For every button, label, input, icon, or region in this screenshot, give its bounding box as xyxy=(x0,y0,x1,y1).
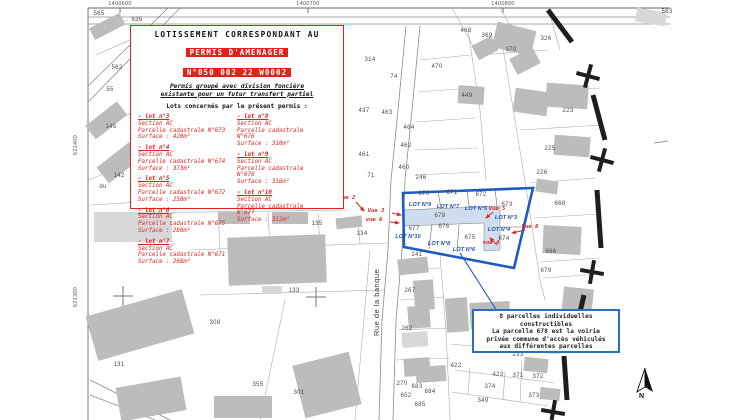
parcel-number-label: 349 xyxy=(478,398,489,404)
vue-reference-label: vue 6 xyxy=(366,217,383,223)
vue-reference-label: Vue 5 xyxy=(489,206,506,212)
permit-lot-entry: - lot n°8Section ACParcelle cadastraleN°… xyxy=(237,114,336,148)
parcel-number-label: 134 xyxy=(357,231,368,237)
grid-coordinate-top: 1400700 xyxy=(296,1,320,7)
parcel-number-label: 71 xyxy=(367,173,374,179)
grid-coordinate-left: 621300 xyxy=(73,287,79,307)
parcel-number-label: 449 xyxy=(462,93,473,99)
parcel-number-label: 314 xyxy=(365,57,376,63)
parcel-number-label: 226 xyxy=(537,170,548,176)
lot-name-label: LOT N°5 xyxy=(465,206,487,212)
grid-coordinate-top: 1400600 xyxy=(108,1,132,7)
parcel-number-label: 74 xyxy=(390,74,397,80)
lot-name-label: LOT N°9 xyxy=(409,202,431,208)
parcel-number-label: 374 xyxy=(485,384,496,390)
permit-lot-line: Parcelle cadastrale xyxy=(237,128,336,135)
permit-lot-line: Parcelle cadastrale xyxy=(237,204,336,211)
parcel-number-label: 565 xyxy=(94,11,105,17)
permit-lot-header: - lot n°7 xyxy=(138,239,237,246)
parcel-number-label: 369 xyxy=(482,33,493,39)
parcel-number-label: 668 xyxy=(555,201,566,207)
parcel-number-label: 685 xyxy=(415,402,426,408)
parcel-number-label: du xyxy=(99,184,106,190)
permit-lot-line: Surface : 268m² xyxy=(138,259,237,266)
parcel-number-label: 246 xyxy=(416,175,427,181)
parcels-info-box: 8 parcelles individuelles constructibles… xyxy=(472,309,620,353)
permit-lot-header: - lot n°3 xyxy=(138,114,237,121)
permit-lot-header: - lot n°8 xyxy=(237,114,336,121)
parcel-number-label: 225 xyxy=(545,146,556,152)
permit-number-banner: N°050 002 22 W0002 xyxy=(183,68,291,77)
parcel-number-label: 679 xyxy=(541,268,552,274)
lot-parcel-number-label: 670 xyxy=(419,191,430,197)
permit-lot-line: Section AC xyxy=(237,121,336,128)
lot-parcel-number-label: 677 xyxy=(409,226,420,232)
parcel-number-label: 460 xyxy=(399,165,410,171)
lot-name-label: LOT N°6 xyxy=(453,247,475,253)
parcel-number-label: 666 xyxy=(546,249,557,255)
vue-reference-label: Vue 8 xyxy=(522,224,539,230)
parcel-number-label: 463 xyxy=(382,110,393,116)
permit-lots-column: - lot n°3Section ACParcelle cadastrale N… xyxy=(138,114,237,270)
parcel-number-label: 468 xyxy=(461,28,472,34)
parcel-number-label: 372 xyxy=(533,374,544,380)
permit-lot-line: Section AC xyxy=(138,214,237,221)
permit-lot-header: - lot n°5 xyxy=(138,176,237,183)
parcel-number-label: 262 xyxy=(402,326,413,332)
parcel-number-label: 142 xyxy=(114,173,125,179)
permit-lot-line: Parcelle cadastrale N°672 xyxy=(138,190,237,197)
parcel-number-label: 462 xyxy=(401,143,412,149)
permit-lot-line: Section AC xyxy=(138,246,237,253)
lot-name-label: LOT N°7 xyxy=(437,204,459,210)
lot-name-label: LOT N°3 xyxy=(495,215,517,221)
permit-lot-line: Section AC xyxy=(237,159,336,166)
permit-lot-line: Surface : 316m² xyxy=(237,179,336,186)
parcel-number-label: 241 xyxy=(412,252,423,258)
street-name-label: Rue de la banque xyxy=(372,255,386,350)
permit-lot-line: Surface : 420m² xyxy=(138,134,237,141)
lot-parcel-number-label: 671 xyxy=(447,190,458,196)
permit-lot-header: - lot n°4 xyxy=(138,145,237,152)
permit-type-banner: PERMIS D'AMENAGER xyxy=(186,48,289,57)
parcel-number-label: 464 xyxy=(404,125,415,131)
parcel-number-label: 371 xyxy=(513,373,524,379)
permit-lot-entry: - lot n°9Section ACParcelle cadastraleN°… xyxy=(237,152,336,186)
parcel-number-label: 131 xyxy=(114,362,125,368)
permit-lot-entry: - lot n°7Section ACParcelle cadastrale N… xyxy=(138,239,237,266)
parcel-number-label: 223 xyxy=(563,108,574,114)
parcel-number-label: 145 xyxy=(106,124,117,130)
parcel-number-label: 635 xyxy=(132,17,143,23)
parcel-number-label: 55 xyxy=(106,87,113,93)
parcel-number-label: 562 xyxy=(112,65,123,71)
permit-lot-header: - lot n°10 xyxy=(237,190,336,197)
cadastral-map-sheet: 56563556255145142du131308133355301135134… xyxy=(0,0,750,420)
parcel-number-label: 683 xyxy=(412,384,423,390)
permit-lot-line: Surface : 373m² xyxy=(138,166,237,173)
north-arrow-icon xyxy=(637,368,653,392)
parcel-number-label: 422 xyxy=(451,363,462,369)
lot-parcel-number-label: 678 xyxy=(435,213,446,219)
parcel-number-label: 602 xyxy=(401,393,412,399)
grid-coordinate-left: 621400 xyxy=(73,135,79,155)
parcel-number-label: 684 xyxy=(425,389,436,395)
vue-reference-label: Vue 3 xyxy=(368,208,385,214)
permit-lots-columns: - lot n°3Section ACParcelle cadastrale N… xyxy=(131,114,343,270)
parcel-number-label: 326 xyxy=(541,36,552,42)
permit-lot-line: Surface : 312m² xyxy=(237,217,336,224)
north-label: N xyxy=(639,393,644,400)
parcel-number-label: 301 xyxy=(294,390,305,396)
permit-lot-line: Parcelle cadastrale N°675 xyxy=(138,221,237,228)
parcel-number-label: 373 xyxy=(529,393,540,399)
permit-lot-line: Surface : 280m² xyxy=(138,228,237,235)
permit-box-title: LOTISSEMENT CORRESPONDANT AU xyxy=(131,30,343,39)
permit-lot-header: - lot n°6 xyxy=(138,208,237,215)
lot-name-label: LOT N°4 xyxy=(488,227,510,233)
parcel-number-label: 355 xyxy=(253,382,264,388)
vue-reference-label: vue 4 xyxy=(483,240,500,246)
parcel-number-label: 308 xyxy=(210,320,221,326)
permit-lot-line: Surface : 310m² xyxy=(237,141,336,148)
permit-lot-entry: - lot n°5Section ACParcelle cadastrale N… xyxy=(138,176,237,203)
permit-lot-entry: - lot n°3Section ACParcelle cadastrale N… xyxy=(138,114,237,141)
permit-lot-entry: - lot n°4Section ACParcelle cadastrale N… xyxy=(138,145,237,172)
parcel-number-label: 461 xyxy=(359,152,370,158)
parcel-number-label: 270 xyxy=(397,381,408,387)
permit-lot-line: Section AC xyxy=(138,152,237,159)
permit-lots-column: - lot n°8Section ACParcelle cadastraleN°… xyxy=(237,114,336,270)
permit-lot-line: Surface : 250m² xyxy=(138,197,237,204)
permit-lot-line: Section AC xyxy=(138,183,237,190)
parcel-number-label: 267 xyxy=(405,288,416,294)
permit-box-intro: Lots concernés par le présent permis : xyxy=(131,103,343,110)
grid-coordinate-top: 1400800 xyxy=(491,1,515,7)
permit-lot-line: Parcelle cadastrale xyxy=(237,166,336,173)
parcel-number-label: 563 xyxy=(662,9,673,15)
permit-lot-entry: - lot n°6Section ACParcelle cadastrale N… xyxy=(138,208,237,235)
permit-lot-line: Parcelle cadastrale N°674 xyxy=(138,159,237,166)
permit-lot-entry: - lot n°10Section ACParcelle cadastraleN… xyxy=(237,190,336,224)
permit-annotation-box: LOTISSEMENT CORRESPONDANT AU PERMIS D'AM… xyxy=(130,25,344,209)
permit-lot-header: - lot n°9 xyxy=(237,152,336,159)
lot-parcel-number-label: 675 xyxy=(465,235,476,241)
parcel-number-label: 370 xyxy=(506,47,517,53)
permit-box-subtitle: Permis groupé avec division foncière exi… xyxy=(131,83,343,98)
lot-name-label: LOT N°10 xyxy=(395,234,420,240)
permit-lot-line: Section AC xyxy=(138,121,237,128)
lot-parcel-number-label: 672 xyxy=(476,192,487,198)
parcel-number-label: 470 xyxy=(432,64,443,70)
parcel-number-label: 423 xyxy=(493,372,504,378)
permit-lot-line: Section AC xyxy=(237,197,336,204)
lot-parcel-number-label: 676 xyxy=(439,224,450,230)
parcel-number-label: 133 xyxy=(289,288,300,294)
lot-name-label: LOT N°8 xyxy=(428,241,450,247)
lot-parcel-number-label: 674 xyxy=(499,236,510,242)
parcel-number-label: 437 xyxy=(359,108,370,114)
